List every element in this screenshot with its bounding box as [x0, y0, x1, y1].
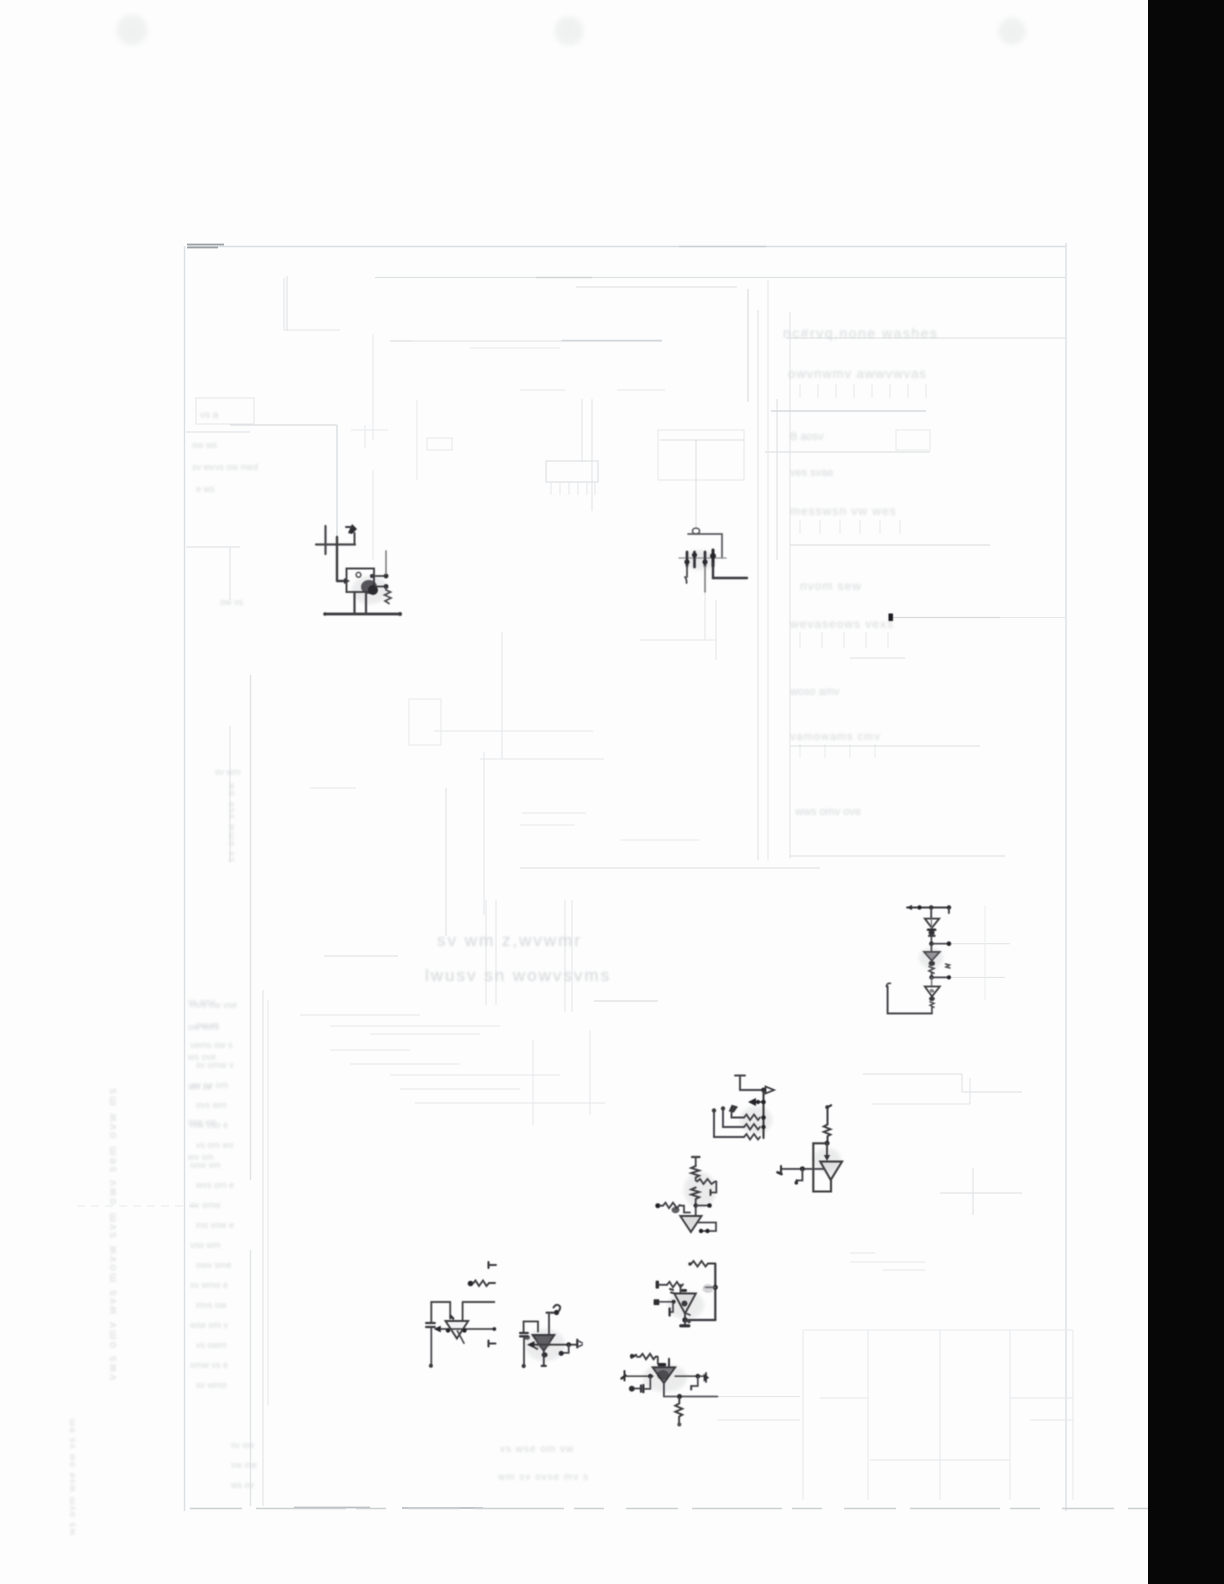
svg-text:vw me: vw me: [231, 1460, 257, 1470]
svg-text:sv ow: sv ow: [231, 1440, 255, 1450]
svg-text:nc#rvq,none washes: nc#rvq,none washes: [783, 325, 938, 341]
svg-text:vs ow med: vs ow med: [215, 462, 258, 472]
svg-text:wse om v: wse om v: [189, 1320, 229, 1330]
svg-text:wws omv ove: wws omv ove: [794, 806, 861, 818]
svg-text:sv omw vse ow: sv omw vse ow: [226, 781, 236, 862]
svg-text:messwsn vw wes: messwsn vw wes: [790, 504, 897, 518]
svg-text:sv wmo e: sv wmo e: [190, 1280, 228, 1290]
svg-text:ov smw: ov smw: [190, 1200, 221, 1210]
svg-text:vws omv wvs movw svm owv sem o: vws omv wvs movw svm owv sem ovw ms: [107, 1086, 119, 1380]
svg-text:vs om wv: vs om wv: [196, 1140, 234, 1150]
svg-text:sow vm: sow vm: [190, 1160, 221, 1170]
svg-text:owvnwmv awwvwvas: owvnwmv awwvwvas: [788, 366, 927, 381]
svg-text:vems ow s: vems ow s: [190, 1040, 233, 1050]
svg-text:vs wse om vw: vs wse om vw: [500, 1444, 574, 1455]
svg-text:vs owm: vs owm: [196, 1340, 227, 1350]
svg-text:ms vow e: ms vow e: [196, 1220, 234, 1230]
svg-text:mw vso e: mw vso e: [190, 1120, 228, 1130]
svg-text:lwusv sn wowvsvms: lwusv sn wowvsvms: [425, 966, 611, 985]
svg-text:B aosv: B aosv: [790, 431, 824, 443]
svg-text:wvs om e: wvs om e: [195, 1180, 234, 1190]
svg-text:wm sv ovse mv s: wm sv ovse mv s: [497, 1472, 589, 1483]
svg-text:sv wv: sv wv: [192, 462, 215, 472]
svg-text:sv omw v: sv omw v: [196, 1060, 234, 1070]
svg-text:wevaseows vexs: wevaseows vexs: [789, 617, 894, 631]
svg-text:omw vs e: omw vs e: [190, 1360, 228, 1370]
svg-text:mvs ow vse: mvs ow vse: [190, 1000, 237, 1010]
svg-text:ws ov: ws ov: [230, 1480, 255, 1490]
svg-text:woso amv: woso amv: [789, 686, 840, 698]
svg-text:wv se om: wv se om: [189, 1080, 228, 1090]
svg-text:ws ovm wse ow vs em: ws ovm wse ow vs em: [67, 1417, 77, 1536]
svg-text:ves svae: ves svae: [790, 467, 833, 479]
svg-text:sv wm: sv wm: [215, 767, 241, 777]
svg-text:nvom sew: nvom sew: [800, 579, 862, 593]
svg-text:ow vs: ow vs: [220, 597, 244, 607]
svg-text:vamowams cmv: vamowams cmv: [790, 731, 881, 743]
svg-text:vso wm: vso wm: [190, 1240, 221, 1250]
svg-text:vs a: vs a: [200, 410, 219, 421]
svg-text:ow ws: ow ws: [192, 440, 218, 450]
svg-text:ovs wm: ovs wm: [196, 1100, 227, 1110]
svg-text:mvs ow: mvs ow: [196, 1300, 227, 1310]
svg-text:ow vs: ow vs: [196, 1020, 220, 1030]
svg-text:sv wmo: sv wmo: [196, 1380, 227, 1390]
svg-text:sv wm z,wvwmr: sv wm z,wvwmr: [437, 931, 582, 950]
svg-text:e ws: e ws: [196, 484, 215, 494]
svg-text:owv sme: owv sme: [196, 1260, 232, 1270]
